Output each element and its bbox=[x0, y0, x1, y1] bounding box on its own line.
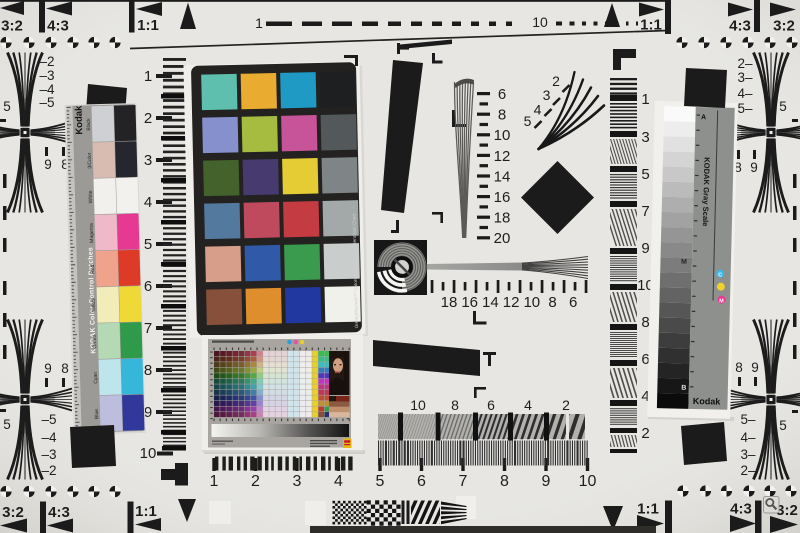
svg-text:Red: Red bbox=[90, 264, 96, 274]
svg-text:8: 8 bbox=[735, 360, 743, 375]
svg-text:8: 8 bbox=[61, 361, 69, 376]
svg-text:8: 8 bbox=[498, 107, 506, 124]
svg-text:3/Color: 3/Color bbox=[87, 152, 93, 169]
svg-text:6: 6 bbox=[569, 294, 577, 311]
svg-text:14: 14 bbox=[482, 294, 499, 311]
svg-text:18: 18 bbox=[441, 294, 458, 311]
svg-text:1:1: 1:1 bbox=[137, 17, 159, 34]
svg-text:B: B bbox=[681, 385, 686, 392]
svg-text:1: 1 bbox=[210, 473, 219, 490]
svg-text:10: 10 bbox=[523, 294, 540, 311]
svg-text:4:3: 4:3 bbox=[730, 501, 752, 518]
svg-text:1: 1 bbox=[144, 68, 152, 85]
svg-text:Blue: Blue bbox=[94, 409, 100, 419]
svg-text:3:2: 3:2 bbox=[773, 18, 795, 35]
svg-text:18: 18 bbox=[494, 210, 511, 227]
svg-text:2–: 2– bbox=[737, 56, 753, 71]
svg-text:2: 2 bbox=[144, 110, 152, 127]
svg-text:Green: Green bbox=[92, 334, 98, 348]
svg-text:Kodak: Kodak bbox=[73, 105, 85, 135]
svg-text:3: 3 bbox=[293, 473, 302, 490]
svg-text:9: 9 bbox=[750, 160, 758, 175]
svg-text:4: 4 bbox=[534, 102, 542, 118]
svg-text:10: 10 bbox=[410, 397, 426, 413]
svg-text:Yellow: Yellow bbox=[91, 298, 97, 313]
svg-text:5: 5 bbox=[144, 236, 152, 253]
svg-text:5: 5 bbox=[3, 417, 11, 432]
svg-text:5: 5 bbox=[641, 166, 649, 183]
svg-text:5–: 5– bbox=[740, 412, 756, 427]
svg-text:White: White bbox=[88, 190, 94, 203]
svg-text:–4: –4 bbox=[41, 430, 57, 445]
svg-text:9: 9 bbox=[44, 157, 52, 172]
svg-text:4: 4 bbox=[144, 194, 152, 211]
svg-text:5–: 5– bbox=[737, 101, 753, 116]
svg-text:7: 7 bbox=[641, 203, 649, 220]
svg-text:M: M bbox=[681, 259, 687, 266]
svg-text:9: 9 bbox=[44, 361, 52, 376]
svg-text:–3: –3 bbox=[41, 447, 56, 462]
svg-text:1:1: 1:1 bbox=[640, 17, 662, 34]
svg-text:6: 6 bbox=[144, 278, 152, 295]
svg-text:2: 2 bbox=[251, 473, 260, 490]
svg-text:KODAK Gray Scale: KODAK Gray Scale bbox=[701, 157, 712, 226]
svg-text:9: 9 bbox=[751, 360, 759, 375]
svg-text:12: 12 bbox=[494, 148, 511, 165]
svg-text:2: 2 bbox=[562, 397, 570, 413]
svg-text:7: 7 bbox=[459, 473, 468, 490]
svg-text:14: 14 bbox=[494, 168, 511, 185]
svg-text:10: 10 bbox=[140, 445, 157, 462]
svg-text:5: 5 bbox=[779, 99, 787, 114]
svg-text:3–: 3– bbox=[737, 70, 753, 85]
svg-text:16: 16 bbox=[494, 189, 511, 206]
svg-text:8: 8 bbox=[144, 362, 152, 379]
svg-text:4:3: 4:3 bbox=[48, 504, 70, 521]
svg-text:2: 2 bbox=[641, 425, 649, 442]
svg-text:7: 7 bbox=[144, 320, 152, 337]
svg-text:9: 9 bbox=[542, 473, 551, 490]
svg-text:16: 16 bbox=[461, 294, 478, 311]
svg-text:–5: –5 bbox=[39, 95, 54, 110]
svg-text:3:2: 3:2 bbox=[1, 18, 23, 35]
svg-text:8: 8 bbox=[451, 397, 459, 413]
svg-text:4–: 4– bbox=[737, 86, 753, 101]
svg-text:2: 2 bbox=[552, 73, 560, 89]
svg-text:Magenta: Magenta bbox=[89, 223, 96, 243]
svg-text:4:3: 4:3 bbox=[729, 18, 751, 35]
svg-text:5: 5 bbox=[376, 473, 385, 490]
svg-text:3–: 3– bbox=[740, 447, 756, 462]
svg-text:3:2: 3:2 bbox=[2, 504, 24, 521]
svg-text:1:1: 1:1 bbox=[637, 501, 659, 518]
svg-text:3: 3 bbox=[144, 152, 152, 169]
svg-text:–3: –3 bbox=[39, 68, 54, 83]
svg-text:8: 8 bbox=[500, 473, 509, 490]
svg-text:3: 3 bbox=[543, 87, 551, 103]
svg-text:Kodak: Kodak bbox=[693, 396, 722, 407]
svg-text:5: 5 bbox=[524, 113, 532, 129]
svg-text:–5: –5 bbox=[41, 412, 56, 427]
svg-text:1: 1 bbox=[255, 15, 263, 31]
svg-text:6: 6 bbox=[417, 473, 426, 490]
svg-text:4–: 4– bbox=[740, 430, 756, 445]
svg-text:2–: 2– bbox=[740, 463, 756, 478]
svg-text:A: A bbox=[701, 114, 706, 121]
svg-text:4:3: 4:3 bbox=[47, 18, 69, 35]
svg-text:–2: –2 bbox=[41, 463, 56, 478]
svg-text:3: 3 bbox=[641, 129, 649, 146]
svg-text:8: 8 bbox=[548, 294, 556, 311]
svg-text:–2: –2 bbox=[39, 54, 54, 69]
svg-text:12: 12 bbox=[503, 294, 520, 311]
svg-text:20: 20 bbox=[494, 230, 511, 247]
svg-text:1: 1 bbox=[641, 91, 649, 108]
svg-text:4: 4 bbox=[524, 397, 532, 413]
svg-text:5: 5 bbox=[779, 418, 787, 433]
svg-text:M: M bbox=[719, 298, 724, 304]
svg-text:10: 10 bbox=[579, 473, 597, 490]
svg-text:C: C bbox=[718, 272, 722, 278]
svg-text:5: 5 bbox=[3, 99, 11, 114]
svg-text:6: 6 bbox=[487, 397, 495, 413]
svg-text:Black: Black bbox=[86, 118, 92, 131]
svg-text:6: 6 bbox=[498, 86, 506, 103]
svg-text:10: 10 bbox=[494, 127, 511, 144]
svg-text:8: 8 bbox=[641, 314, 649, 331]
svg-text:Cyan: Cyan bbox=[93, 372, 99, 384]
svg-text:1:1: 1:1 bbox=[135, 503, 157, 520]
svg-text:4: 4 bbox=[334, 473, 343, 490]
svg-text:10: 10 bbox=[532, 14, 548, 30]
svg-text:9: 9 bbox=[641, 240, 649, 257]
